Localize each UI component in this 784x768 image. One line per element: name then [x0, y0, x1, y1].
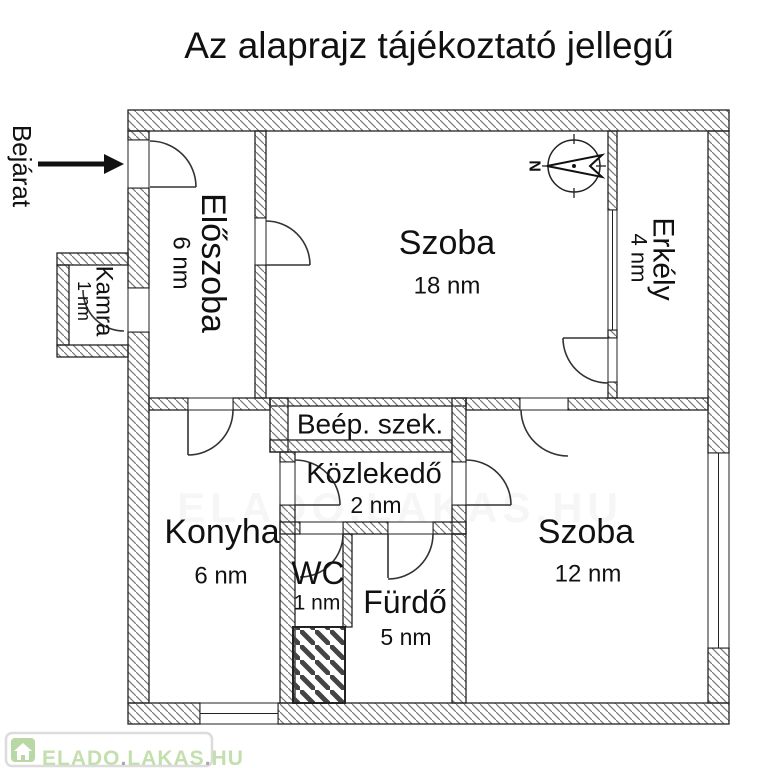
kamra-door-opening	[128, 288, 149, 332]
room-area-kamra: 1 nm	[74, 281, 94, 321]
wall-left-seg3	[128, 332, 149, 703]
watermark-part1: ELADO	[42, 747, 121, 768]
wall-right-seg2	[708, 648, 729, 703]
wall-left-seg1	[128, 131, 149, 140]
wall-kozlekedo-bottom-seg1	[280, 522, 300, 534]
eloszoba-szoba-door-arc	[266, 221, 310, 265]
room-label-konyha: Konyha	[164, 513, 279, 551]
watermark-dot1: .	[121, 747, 128, 768]
wall-middle-seg4	[568, 398, 708, 410]
kamra-wall-left	[57, 265, 69, 345]
floorplan-drawing: Az alaprajz tájékoztató jellegű ELADO.LA…	[0, 0, 784, 768]
wall-middle-seg3	[466, 398, 520, 410]
page-title: Az alaprajz tájékoztató jellegű	[184, 25, 674, 66]
entrance-label: Bejárat	[7, 125, 37, 208]
kozlekedo-left-door-opening	[280, 462, 295, 505]
wall-furdo-szoba12	[452, 534, 466, 703]
room-label-kozlekedo: Közlekedő	[306, 458, 441, 490]
room-area-furdo: 5 nm	[380, 624, 431, 650]
wall-kozlekedo-bottom-seg2	[343, 522, 388, 534]
room-area-erkely: 4 nm	[627, 234, 652, 283]
watermark-part2: LAKAS	[127, 747, 204, 768]
watermark-badge-text: ELADO.LAKAS.HU	[42, 747, 244, 768]
room-label-szoba18: Szoba	[399, 224, 495, 262]
wall-middle-seg2	[233, 398, 270, 410]
wall-eloszoba-szoba-seg1	[255, 131, 266, 218]
shaft	[293, 627, 345, 703]
room-area-kozlekedo: 2 nm	[350, 492, 401, 518]
room-labels: Előszoba 6 nm Kamra 1 nm Szoba 18 nm Erk…	[74, 193, 680, 650]
wall-top	[128, 110, 729, 131]
konyha-door-opening	[188, 398, 233, 410]
wall-left-seg2	[128, 188, 149, 288]
entrance-arrow-icon	[38, 154, 124, 174]
wall-szoba-erkely-seg1	[608, 131, 617, 210]
room-label-eloszoba: Előszoba	[194, 193, 232, 333]
closet-wall-top	[270, 398, 466, 406]
compass-north-label: N	[526, 160, 543, 172]
eloszoba-szoba-door-opening	[255, 218, 266, 265]
room-area-szoba18: 18 nm	[414, 273, 481, 300]
watermark-badge: ELADO.LAKAS.HU	[6, 733, 244, 768]
kozlekedo-right-door-opening	[452, 462, 466, 505]
szoba12-top-door-arc	[521, 410, 568, 456]
szoba12-top-door-opening	[520, 398, 568, 410]
wall-szoba-erkely-seg2	[608, 330, 617, 338]
watermark-dot2: .	[205, 747, 212, 768]
room-label-wc: WC	[291, 555, 344, 591]
erkely-door-opening	[608, 338, 617, 382]
house-icon	[11, 738, 35, 762]
kamra-wall-bottom	[57, 345, 128, 357]
entrance-opening	[128, 140, 149, 188]
floorplan-page: Az alaprajz tájékoztató jellegű ELADO.LA…	[0, 0, 784, 768]
room-area-konyha: 6 nm	[194, 563, 247, 590]
furdo-door-arc	[388, 534, 433, 579]
room-label-furdo: Fürdő	[363, 584, 447, 620]
wall-konyha-kozlekedo-seg1	[280, 452, 295, 462]
wall-right-seg1	[708, 131, 729, 453]
wall-middle-seg1	[149, 398, 188, 410]
room-area-szoba12: 12 nm	[555, 561, 622, 588]
wall-bottom-seg1	[128, 703, 200, 724]
room-label-beep-szek: Beép. szek.	[297, 409, 443, 440]
kamra-wall-top	[57, 253, 128, 265]
compass-icon: N	[526, 134, 607, 198]
wall-bottom-seg2	[278, 703, 729, 724]
room-area-wc: 1 nm	[294, 592, 341, 615]
wall-szoba-erkely-seg3	[608, 382, 617, 398]
room-label-szoba12: Szoba	[538, 513, 634, 551]
wc-door-opening	[300, 522, 343, 534]
closet-wall-right-seg1	[452, 398, 466, 462]
furdo-door-opening	[388, 522, 433, 534]
entrance-door-arc	[150, 141, 196, 187]
wall-kozlekedo-bottom-seg3	[433, 522, 466, 534]
watermark-part3: HU	[212, 747, 244, 768]
wall-eloszoba-szoba-seg2	[255, 265, 266, 398]
konyha-door-arc	[188, 410, 233, 455]
closet-wall-bottom	[270, 440, 452, 452]
room-area-eloszoba: 6 nm	[168, 236, 195, 289]
erkely-door-arc	[563, 338, 608, 383]
